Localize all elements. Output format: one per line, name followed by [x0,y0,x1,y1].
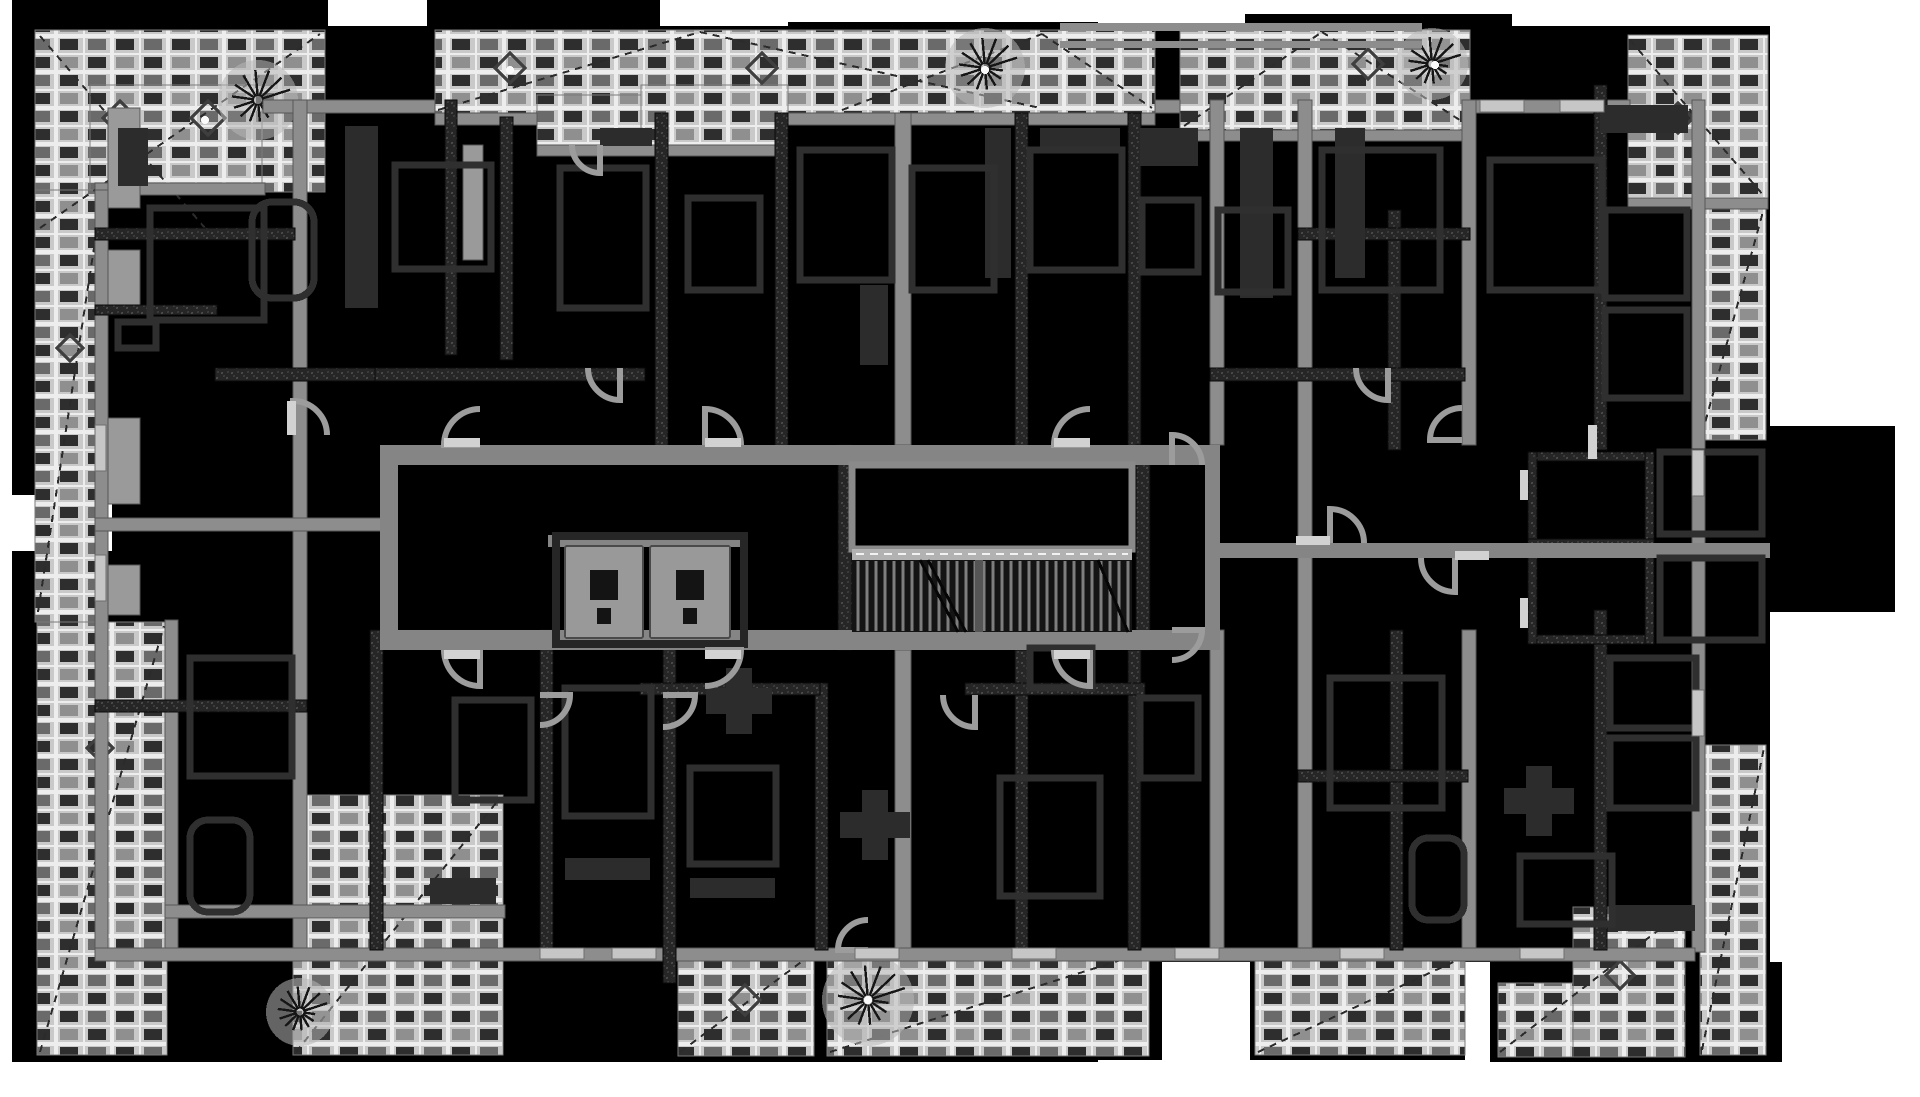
wall-gray [95,518,385,531]
door-leaf [1054,650,1090,659]
survey-dot [981,66,989,74]
door-leaf [1296,536,1330,545]
stair-void [852,465,1132,549]
entry-canopy [1060,23,1422,31]
wall-dark [445,100,457,355]
wall-dark [1128,113,1141,450]
furniture-slab [430,878,496,904]
stair-landing [852,549,1132,560]
balcony-tree [266,978,334,1046]
window [95,425,106,471]
elevator-glyph [683,608,697,624]
furniture-slab [345,126,378,308]
wall-dark [655,113,668,450]
door-leaf [1054,438,1090,447]
window [855,948,899,959]
stair-rail [975,560,983,632]
window [540,948,584,959]
corridor [380,445,398,650]
wall-dark [540,630,553,950]
wall-dark [370,630,383,950]
stair-treads [852,560,1132,632]
door-leaf [444,438,480,447]
furniture-slab [565,858,650,880]
window [1480,100,1524,112]
elevator-glyph [597,608,611,624]
wall-dark [1015,113,1028,450]
window [95,555,106,601]
mask-block [1770,426,1895,612]
wall-dark [215,368,375,381]
pier [108,565,140,615]
window [1520,948,1564,959]
survey-dot [1431,61,1439,69]
wall-gray [1462,100,1476,445]
door-leaf [705,438,741,447]
door-leaf [1455,551,1489,560]
furniture-slab [1504,788,1574,814]
furniture-slab [1610,905,1695,931]
wall-dark [1210,368,1465,381]
window [612,948,656,959]
door-leaf [287,401,296,435]
furniture-slab [600,128,652,146]
furniture-slab [985,128,1011,278]
wall-dark [815,683,828,950]
wall-dark [95,700,307,712]
wall-dark [1594,610,1607,950]
furniture-slab [690,878,775,898]
door-leaf [1520,470,1528,500]
door-leaf [444,650,480,659]
window [1340,948,1384,959]
furniture-slab [860,285,888,365]
door-leaf [1588,425,1597,459]
wall-gray [1298,100,1312,948]
wall-gray [895,650,911,948]
window [1692,450,1704,496]
survey-dot [506,66,514,74]
window [1175,948,1219,959]
window [1560,100,1604,112]
wall-dark [500,117,513,360]
wall-gray [1155,100,1180,113]
survey-dot [201,116,209,124]
wall-dark [373,368,645,381]
wall-gray [788,113,1155,125]
pier [108,418,140,504]
wall-dark [95,305,217,315]
floor-plan-page [0,0,1920,1097]
furniture-slab [1600,105,1688,133]
wall-dark [1136,445,1150,650]
plan-render-root [0,0,1895,1062]
furniture-slab [1040,128,1120,148]
balcony [1255,955,1465,1055]
window [1012,948,1056,959]
elevator-glyph [676,570,704,600]
furniture-slab [1140,128,1198,166]
furniture-slab [118,128,148,186]
window [1692,690,1704,736]
balcony [1498,983,1574,1057]
pier [108,250,140,314]
wall-gray [1210,630,1224,948]
door-leaf [1520,598,1528,628]
entry-canopy [1060,41,1422,48]
wall-dark [775,113,788,450]
survey-dot [864,996,872,1004]
wall-gray [165,620,178,948]
floor-plan-canvas [0,0,1920,1097]
elevator-glyph [590,570,618,600]
furniture-slab [840,812,910,838]
wall-dark [1388,210,1401,450]
wall-gray [1692,100,1705,952]
furniture-slab [706,688,772,714]
wall-dark [1528,635,1654,644]
wall-gray [263,100,435,113]
door-leaf [705,650,741,659]
